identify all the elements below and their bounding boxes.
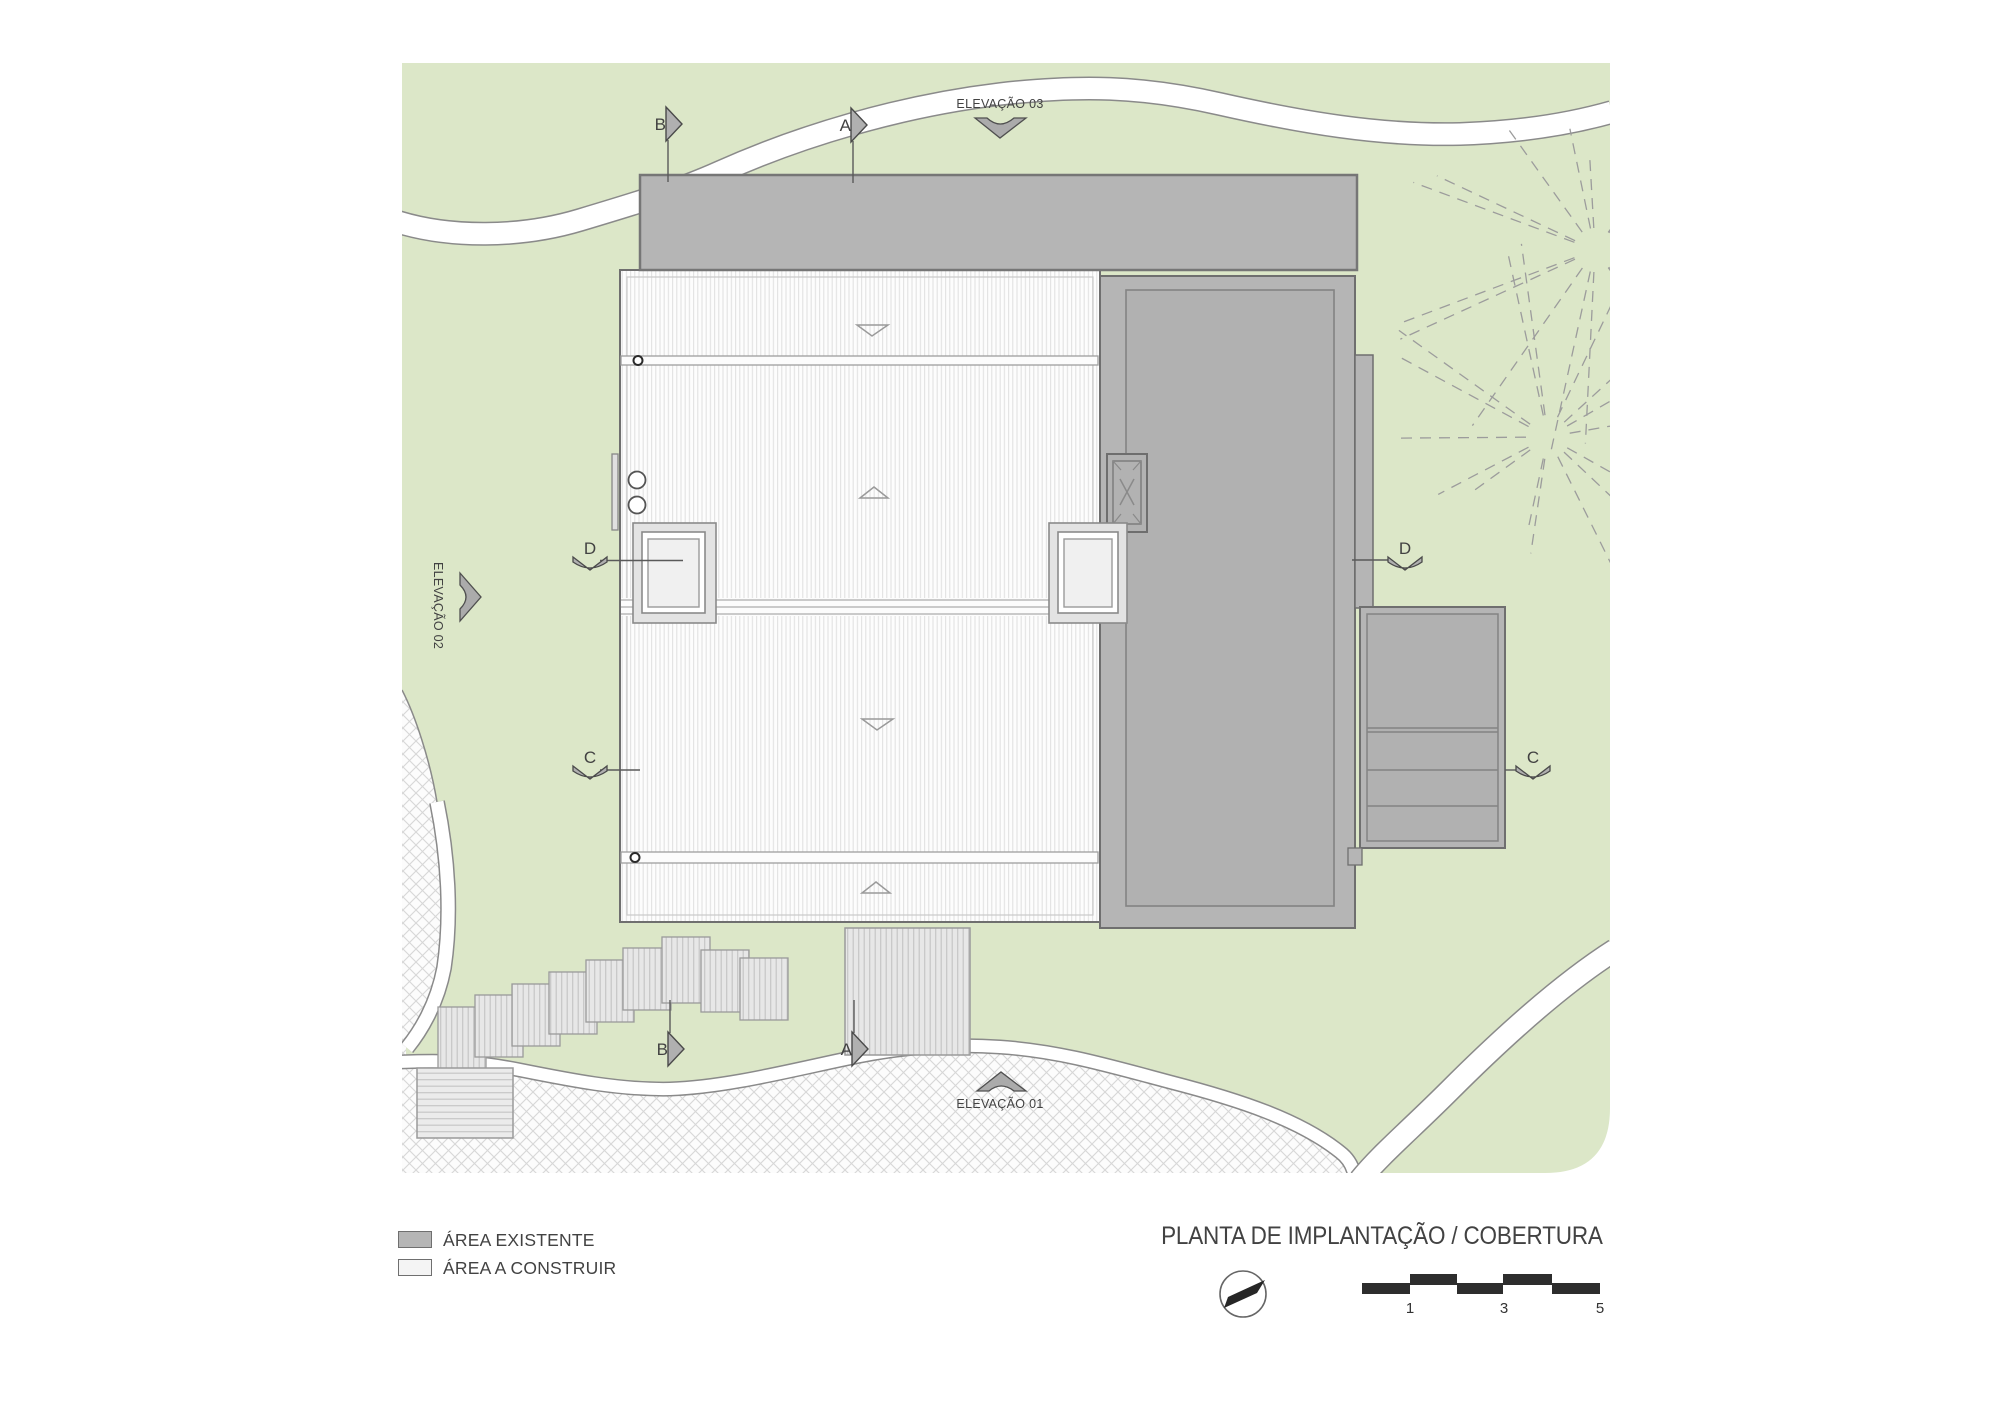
section-letter-bottom-a: A xyxy=(841,1040,852,1060)
section-letter-left-c: C xyxy=(584,748,596,768)
roof-seam-upper xyxy=(621,356,1098,365)
seam-pin-lower xyxy=(631,853,640,862)
entry-deck xyxy=(845,928,970,1055)
site-plan-drawing xyxy=(0,0,2000,1414)
site-plan-canvas: PLANTA DE IMPLANTAÇÃO / COBERTURA ÁREA E… xyxy=(0,0,2000,1414)
section-letter-top-a: A xyxy=(840,116,851,136)
scale-number-3: 3 xyxy=(1500,1300,1508,1317)
legend-label-construct: ÁREA A CONSTRUIR xyxy=(443,1258,616,1279)
legend-label-existing: ÁREA EXISTENTE xyxy=(443,1230,595,1251)
north-arrow-icon xyxy=(1220,1271,1266,1317)
skylight-left xyxy=(633,523,716,623)
vent-box xyxy=(1107,454,1147,532)
existing-roof-top xyxy=(640,175,1357,270)
scale-bar xyxy=(1362,1274,1600,1294)
elevation-02-label: ELEVAÇÃO 02 xyxy=(431,562,445,649)
section-letter-right-c: C xyxy=(1527,748,1539,768)
right-extension xyxy=(1348,607,1505,865)
legend-swatch-existing xyxy=(398,1231,432,1248)
elevation-03-label: ELEVAÇÃO 03 xyxy=(956,97,1043,111)
roof-seam-lower xyxy=(621,852,1098,863)
skylight-right xyxy=(1049,523,1127,623)
page-title: PLANTA DE IMPLANTAÇÃO / COBERTURA xyxy=(1161,1222,1603,1251)
elevation-01-label: ELEVAÇÃO 01 xyxy=(956,1097,1043,1111)
existing-roof-right-inner xyxy=(1126,290,1334,906)
section-letter-bottom-b: B xyxy=(657,1040,668,1060)
lower-landing xyxy=(417,1068,513,1138)
legend-swatch-construct xyxy=(398,1259,432,1276)
scale-number-1: 1 xyxy=(1406,1300,1414,1317)
section-letter-top-b: B xyxy=(655,115,666,135)
section-letter-left-d: D xyxy=(584,539,596,559)
existing-side-strip xyxy=(1355,355,1373,608)
section-letter-right-d: D xyxy=(1399,539,1411,559)
seam-pin-upper xyxy=(634,356,643,365)
scale-number-5: 5 xyxy=(1596,1300,1604,1317)
